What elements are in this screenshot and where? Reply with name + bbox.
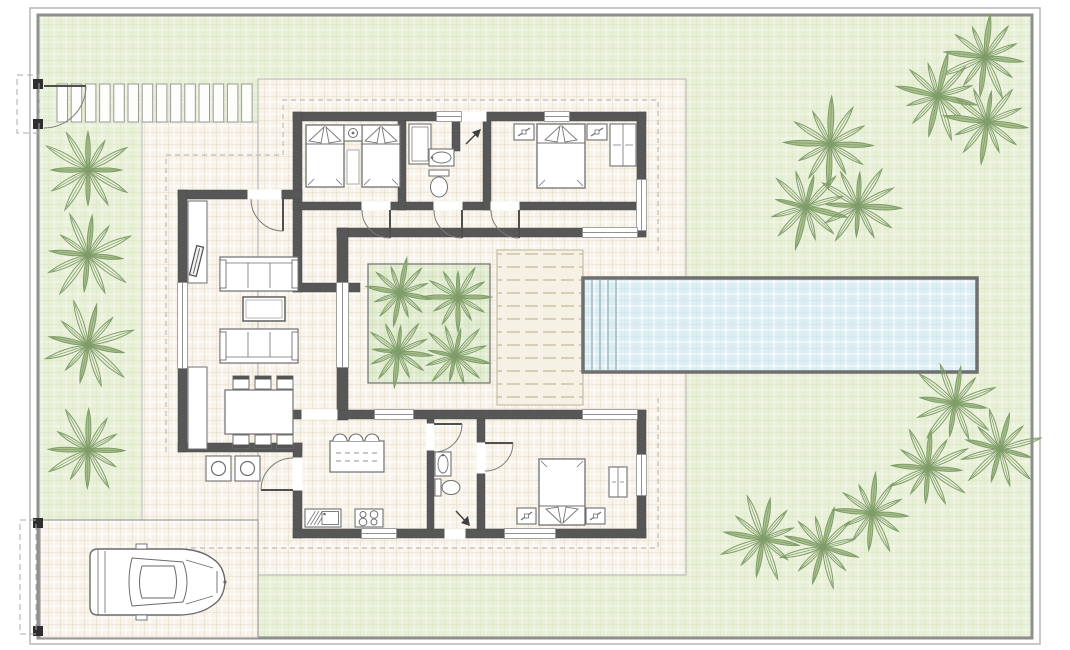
car bbox=[90, 544, 227, 620]
window bbox=[362, 529, 397, 539]
sofa-2 bbox=[220, 329, 298, 363]
floor-plan-svg bbox=[0, 0, 1070, 650]
wardrobe bbox=[609, 467, 627, 497]
window bbox=[178, 283, 188, 369]
wardrobe bbox=[610, 124, 636, 166]
bathroom2-toilet bbox=[435, 479, 460, 496]
nightstand bbox=[344, 125, 362, 141]
sofa-1 bbox=[220, 257, 298, 291]
bathroom1-sink bbox=[429, 149, 454, 166]
kitchen-island bbox=[330, 434, 384, 472]
window bbox=[337, 283, 349, 368]
twin-bed-2 bbox=[362, 125, 400, 187]
nightstand bbox=[586, 508, 605, 524]
coffee-table bbox=[243, 297, 285, 321]
nightstand bbox=[517, 508, 536, 524]
bedroom-rug bbox=[347, 150, 359, 184]
nightstand bbox=[514, 124, 534, 140]
window bbox=[545, 112, 570, 122]
window bbox=[505, 529, 556, 539]
porch-stool bbox=[235, 456, 260, 481]
deck bbox=[497, 250, 583, 405]
floor-plan-canvas bbox=[0, 0, 1070, 650]
window bbox=[437, 112, 462, 122]
bathroom2-sink bbox=[435, 452, 451, 476]
twin-bed-1 bbox=[306, 125, 344, 187]
window bbox=[375, 410, 414, 420]
bathroom1-toilet bbox=[429, 170, 449, 197]
floor-plan-page bbox=[0, 0, 1070, 650]
double-bed-1 bbox=[537, 124, 585, 188]
dining-table bbox=[225, 376, 293, 448]
stove bbox=[355, 509, 383, 527]
window bbox=[637, 455, 647, 496]
window bbox=[637, 180, 647, 231]
shower bbox=[409, 124, 431, 164]
swimming-pool bbox=[583, 278, 977, 372]
porch-stool bbox=[206, 456, 231, 481]
window bbox=[583, 228, 638, 238]
kitchen-sink-unit bbox=[305, 509, 341, 527]
sideboard bbox=[188, 367, 207, 449]
double-bed-2 bbox=[539, 459, 585, 525]
nightstand bbox=[587, 124, 607, 140]
window bbox=[583, 410, 638, 420]
